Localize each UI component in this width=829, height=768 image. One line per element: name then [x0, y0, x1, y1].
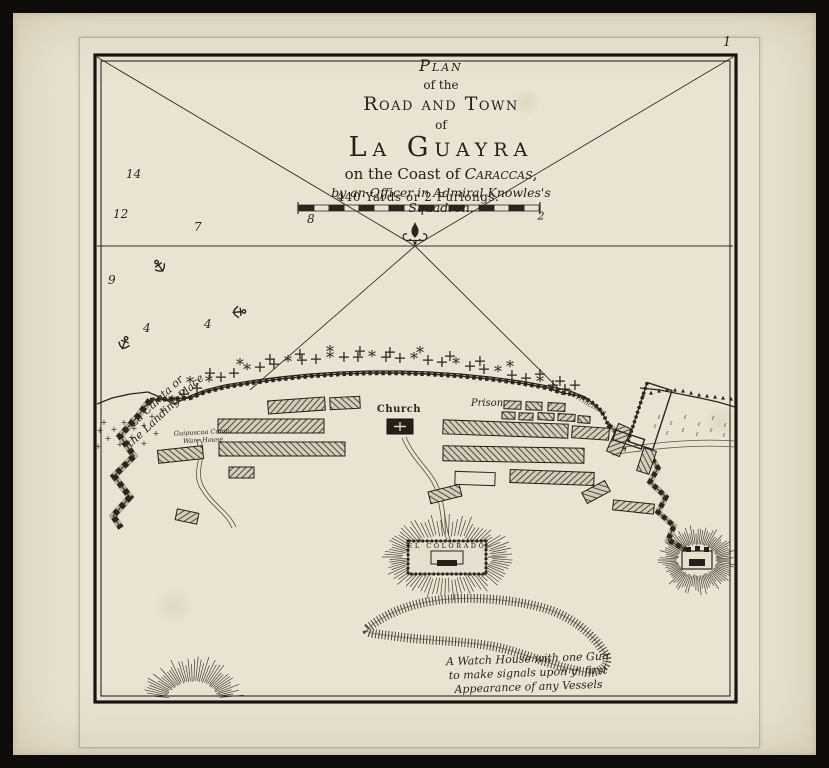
fort-colorado-glacis — [465, 524, 472, 538]
coast-pre: on the Coast of — [345, 165, 465, 183]
town-block — [229, 467, 254, 478]
grass-mark-icon: ℓ — [666, 430, 669, 437]
east-fort-glacis — [716, 561, 731, 562]
fort-colorado-glacis — [437, 521, 440, 536]
fort-colorado-glacis — [463, 577, 470, 593]
east-wall-fill — [648, 452, 686, 550]
east-fort-tooth — [695, 546, 700, 551]
building-block — [510, 470, 594, 486]
title-la-guayra: La Guayra — [301, 132, 581, 163]
grass-mark-icon: ℓ — [696, 431, 699, 438]
shore-tree-icon: + — [443, 346, 456, 365]
town-block — [548, 403, 565, 412]
tree-mark-icon: + — [117, 440, 124, 449]
fort-colorado-glacis — [468, 575, 476, 588]
shore-tree-icon: * — [506, 357, 514, 376]
fort-colorado-glacis — [384, 554, 403, 555]
fort-colorado-glacis — [437, 578, 440, 594]
shore-tree-icon: * — [236, 355, 244, 374]
town-block — [268, 397, 326, 414]
scale-bar-end-mark: 2 — [538, 209, 545, 222]
grass-mark-icon: ℓ — [682, 427, 685, 434]
coast-caraccas: Caraccas — [465, 165, 533, 183]
town-block — [526, 402, 542, 411]
fort-colorado-glacis — [445, 578, 446, 595]
building-block — [578, 416, 590, 424]
shore-tree-icon: + — [293, 344, 306, 363]
fort-colorado-glacis — [424, 577, 431, 593]
road-line — [612, 446, 735, 455]
southwest-hill-hachure — [171, 660, 182, 682]
town-block — [428, 484, 462, 503]
town-block — [219, 442, 345, 456]
fort-colorado-glacis — [449, 514, 450, 534]
town-block — [502, 412, 515, 419]
fort-colorado-glacis — [454, 519, 457, 536]
fort-colorado-glacis — [432, 578, 436, 594]
east-fort-glacis — [690, 525, 693, 543]
coast-tree-icon: ▲ — [649, 390, 653, 396]
town-block — [504, 401, 521, 410]
coast-tree-icon: ▲ — [729, 396, 733, 402]
grass-mark-icon: ℓ — [712, 415, 715, 422]
fleur-de-lis-north-icon — [403, 222, 427, 246]
title-plan: Plan — [301, 56, 581, 75]
shore-tree-icon: * — [326, 342, 334, 361]
southwest-hill-hachure — [192, 664, 193, 682]
town-block — [538, 413, 554, 421]
fort-colorado-glacis — [389, 563, 406, 568]
grass-mark-icon: ℓ — [654, 423, 657, 430]
town-block — [157, 446, 203, 464]
coast-tree-icon: ▲ — [673, 387, 677, 393]
fort-colorado-glacis — [421, 523, 429, 538]
shore-tree-icon: * — [284, 352, 292, 371]
fort-colorado-glacis — [427, 579, 433, 599]
grass-mark-icon: ℓ — [684, 414, 687, 421]
anchor-part — [240, 308, 241, 315]
building-block — [330, 396, 361, 410]
shore-tree-icon: + — [519, 368, 532, 387]
label-fort-colorado: EL COLORADO — [408, 543, 487, 551]
town-block — [443, 420, 568, 438]
fort-colorado-glacis — [425, 522, 431, 537]
building-block — [504, 401, 521, 410]
fort-colorado-glacis — [491, 548, 511, 552]
east-fort-glacis — [711, 542, 721, 550]
sounding-depth: 9 — [108, 273, 116, 287]
shore-tree-icon: + — [533, 364, 546, 383]
coast-tree-icon: ▲ — [681, 388, 685, 394]
shore-tree-icon: * — [494, 362, 502, 381]
southwest-hill-hachure — [199, 663, 204, 682]
tree-mark-icon: + — [95, 442, 102, 451]
east-fort-glacis — [693, 529, 695, 544]
shore-tree-icon: + — [553, 371, 566, 390]
southwest-hill-hachure — [194, 659, 195, 681]
east-fort-glacis — [714, 542, 729, 552]
coast-tree-icon: ▲ — [657, 388, 661, 394]
grass-mark-icon: ℓ — [723, 432, 726, 439]
tree-mark-icon: + — [105, 434, 112, 443]
east-fort-glacis — [698, 529, 699, 544]
town-block — [330, 396, 361, 410]
shore-tree-icon: + — [473, 351, 486, 370]
east-fort-core — [689, 559, 705, 566]
southwest-hill-hachure — [197, 659, 201, 681]
building-block — [428, 484, 462, 503]
building-block — [613, 500, 655, 514]
label-church: Church — [377, 404, 421, 416]
east-fort-glacis — [718, 562, 736, 565]
building-block — [572, 426, 610, 441]
grass-mark-icon: ℓ — [724, 422, 727, 429]
building-block — [548, 403, 565, 412]
building-block — [218, 419, 324, 433]
building-block — [443, 420, 568, 438]
engraved-map-plate: ++++++++++++++*++*++*++*++*++*++*++*++*+… — [0, 0, 829, 768]
building-block — [219, 442, 345, 456]
coast-tree-icon: ▲ — [713, 394, 717, 400]
building-block — [157, 446, 203, 464]
east-fort-tooth — [704, 547, 709, 552]
coast-post: , — [533, 165, 538, 183]
coast-tree-icon: ▲ — [721, 395, 725, 401]
shore-tree-icon: + — [383, 342, 396, 361]
grass-mark-icon: ℓ — [670, 420, 673, 427]
label-watch-house: A Watch House with one Gun to make signa… — [446, 650, 610, 697]
coast-tree-icon: ▲ — [705, 393, 709, 399]
town-block — [218, 419, 324, 433]
town-block — [443, 446, 584, 463]
town-block — [558, 414, 575, 422]
sounding-depth: 12 — [113, 207, 128, 221]
town-block — [572, 426, 610, 441]
sounding-depth: 7 — [194, 220, 202, 234]
southwest-hill-hachure — [188, 659, 190, 681]
shore-tree-icon: * — [243, 360, 251, 379]
building-block — [519, 413, 533, 420]
town-block — [578, 416, 590, 424]
anchor-icon — [151, 258, 167, 275]
east-fort-glacis — [717, 558, 734, 559]
plate-number: 1 — [723, 35, 731, 51]
scale-bar-label: 440 Yards or 2 Furlongs. — [337, 190, 500, 204]
town-block — [175, 509, 199, 524]
label-prison: Prison — [471, 398, 503, 410]
east-fort-glacis — [694, 575, 695, 587]
coast-tree-icon: ▲ — [689, 390, 693, 396]
shore-tree-icon: + — [337, 347, 350, 366]
town-block — [519, 413, 533, 420]
building-block — [538, 413, 554, 421]
fort-colorado-glacis — [467, 528, 475, 540]
fort-colorado-glacis — [451, 522, 453, 537]
east-fort-tooth — [686, 547, 691, 552]
tree-mark-icon: + — [97, 426, 104, 435]
anchor-icon — [117, 335, 131, 351]
southwest-hill-hachure — [148, 681, 169, 691]
anchor-icon — [233, 306, 247, 318]
shore-tree-icon: * — [368, 347, 376, 366]
east-fort-glacis — [658, 561, 676, 562]
east-fort-glacis — [673, 570, 683, 578]
shore-tree-icon: + — [263, 349, 276, 368]
building-block — [175, 509, 199, 524]
building-block — [558, 414, 575, 422]
town-block — [510, 470, 594, 486]
title-of: of — [301, 118, 581, 132]
fort-colorado-glacis — [390, 558, 406, 559]
building-outline — [455, 471, 495, 485]
building-block — [268, 397, 326, 414]
sounding-depth: 14 — [126, 167, 141, 181]
sounding-depth: 4 — [203, 317, 212, 331]
coast-tree-icon: ▲ — [697, 392, 701, 398]
shore-tree-icon: + — [309, 349, 322, 368]
east-fort-glacis — [699, 529, 701, 545]
fort-colorado-glacis — [418, 575, 426, 588]
grass-mark-icon: ℓ — [710, 427, 713, 434]
title-road-town: Road and Town — [301, 93, 581, 115]
fort-colorado-glacis — [448, 578, 449, 593]
title-coast-line: on the Coast of Caraccas, — [301, 165, 581, 183]
town-block — [613, 500, 655, 514]
building-block — [229, 467, 254, 478]
label-warehouse: Guipuscoa Comp. Ware House — [174, 428, 233, 447]
title-of-the: of the — [301, 78, 581, 92]
coast-tree-icon: ▲ — [641, 392, 645, 398]
building-block — [526, 402, 542, 411]
fort-colorado-core — [437, 560, 457, 566]
building-block — [443, 446, 584, 463]
building-block — [502, 412, 515, 419]
fort-colorado-glacis — [441, 578, 443, 595]
sounding-depth: 4 — [142, 321, 151, 335]
grass-mark-icon: ℓ — [658, 414, 661, 421]
shore-tree-icon: * — [416, 343, 424, 362]
east-fort-glacis — [696, 576, 697, 591]
east-fort-glacis — [660, 558, 677, 559]
fort-colorado-glacis — [492, 559, 512, 560]
grass-mark-icon: ℓ — [698, 421, 701, 428]
east-fort-glacis — [698, 576, 699, 592]
coast-tree-icon: ▲ — [665, 387, 669, 393]
shore-tree-icon: + — [353, 341, 366, 360]
fort-colorado-glacis — [492, 554, 512, 555]
